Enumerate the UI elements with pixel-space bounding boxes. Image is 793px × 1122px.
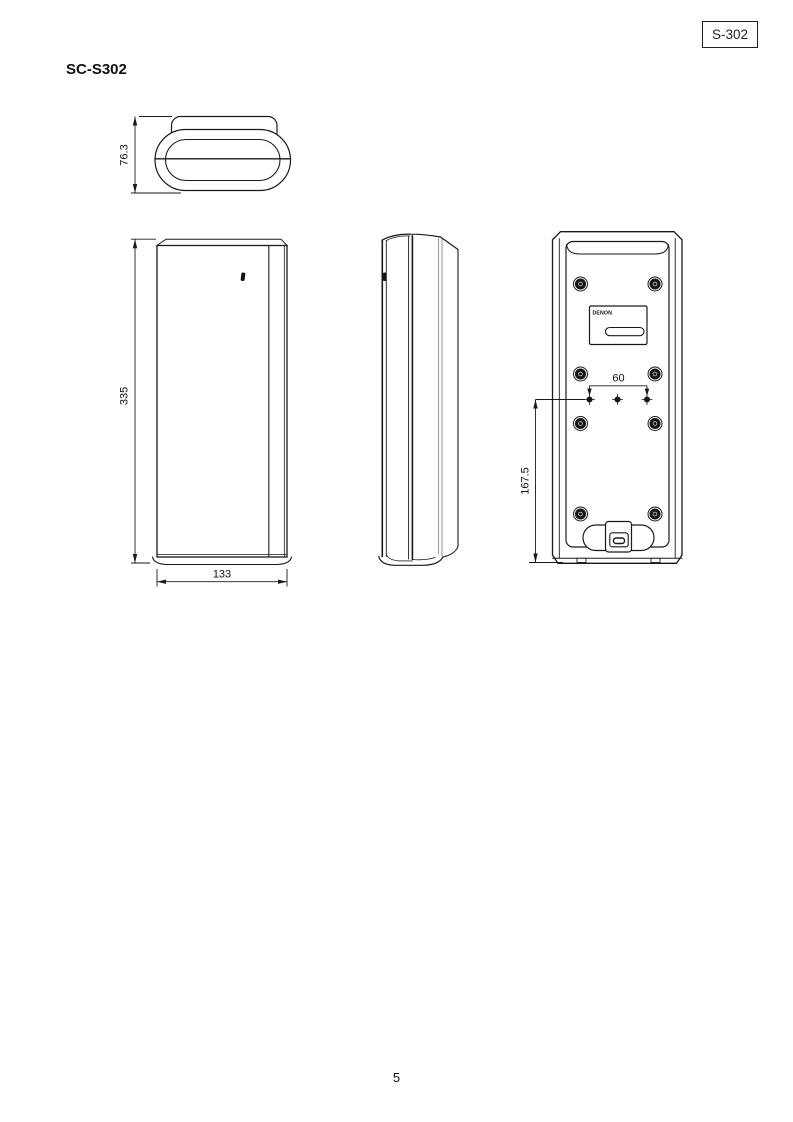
screw-hole: [648, 277, 662, 291]
dim-front-width-label: 133: [213, 569, 231, 581]
rear-view: DENON: [553, 232, 683, 564]
dim-front-width: 133: [157, 569, 287, 587]
rear-foot-right: [651, 558, 660, 562]
brand-label: DENON: [593, 311, 613, 317]
manual-page: S-302 SC-S302: [0, 0, 793, 1122]
screw-hole: [574, 507, 588, 521]
dim-mount-spacing-label: 60: [612, 373, 624, 385]
rear-label-slot: [606, 328, 645, 336]
front-top-face: [157, 239, 287, 245]
side-view: [379, 234, 458, 565]
dim-mount-height-label: 167.5: [520, 467, 532, 495]
screw-hole: [574, 277, 588, 291]
side-top-outline: [382, 234, 458, 249]
dim-front-height: 335: [119, 239, 157, 563]
rear-foot-left: [577, 558, 586, 562]
dim-top-depth-label: 76.3: [119, 144, 131, 165]
front-base: [153, 557, 292, 565]
screw-hole: [648, 417, 662, 431]
dim-front-height-label: 335: [119, 387, 131, 405]
screw-hole: [574, 417, 588, 431]
front-view: [153, 239, 292, 564]
dimension-drawing: 76.3 335 133: [0, 0, 793, 1122]
screw-hole: [648, 367, 662, 381]
page-number: 5: [0, 1070, 793, 1085]
screw-hole: [574, 367, 588, 381]
front-cabinet: [157, 246, 287, 558]
side-base-back: [443, 547, 458, 558]
screw-hole: [648, 507, 662, 521]
top-view-outer-body: [155, 130, 291, 191]
side-logo-mark: [383, 273, 386, 282]
top-view: [155, 117, 291, 191]
